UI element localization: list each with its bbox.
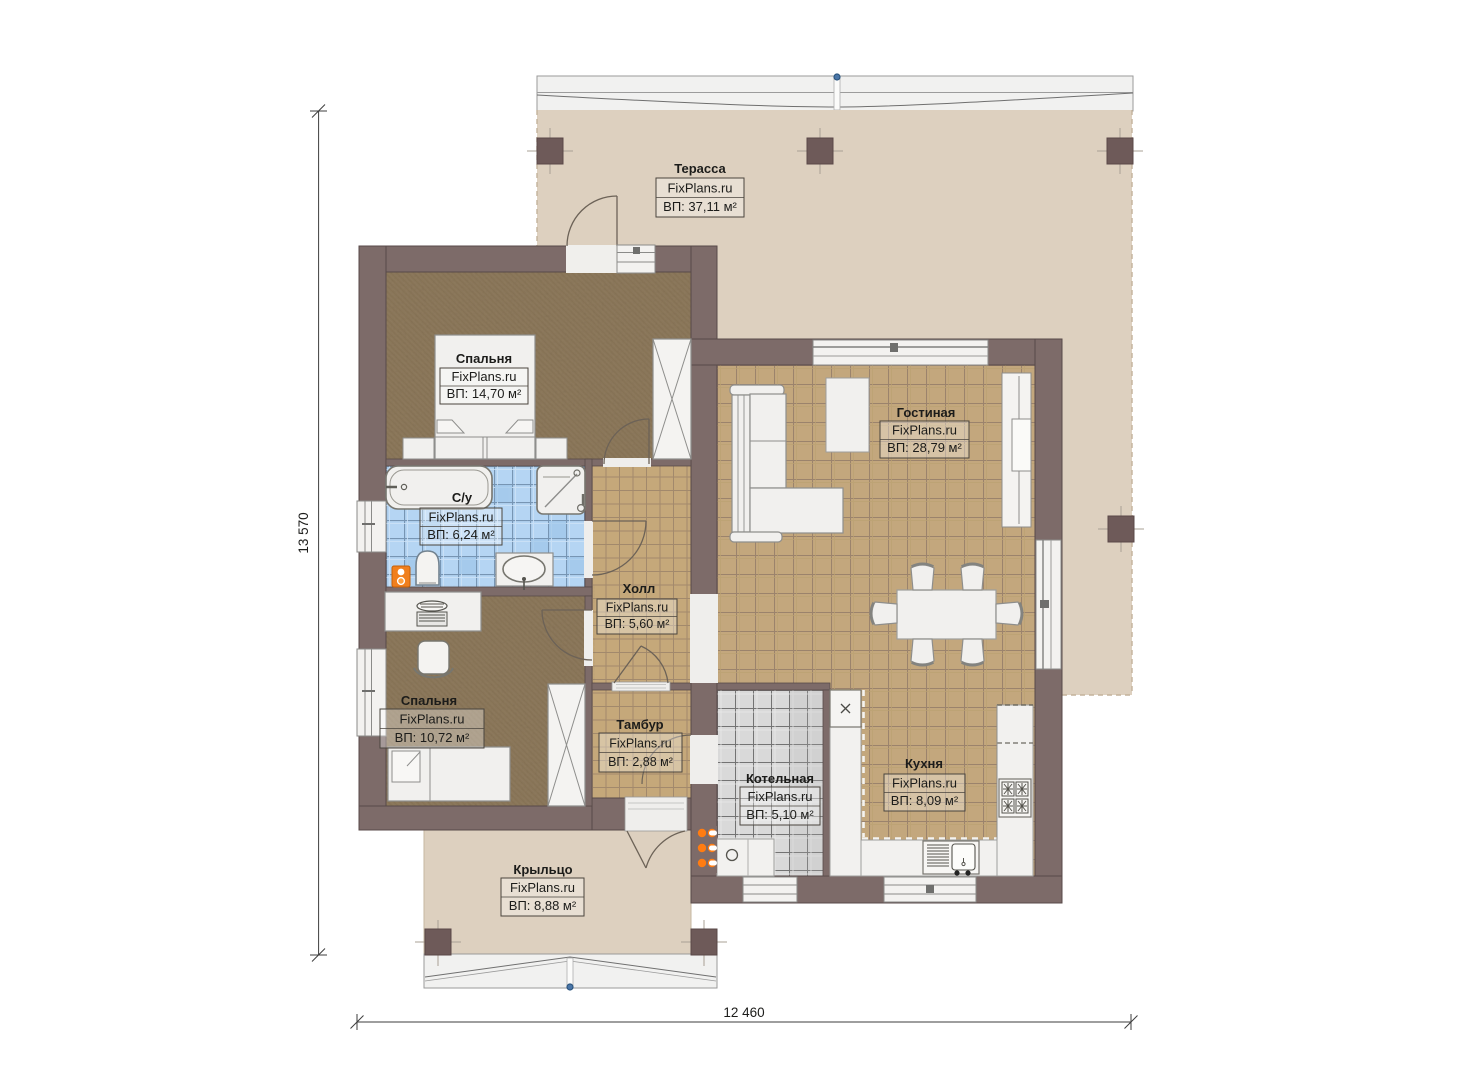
svg-text:FixPlans.ru: FixPlans.ru [609,737,672,751]
svg-text:FixPlans.ru: FixPlans.ru [399,712,464,727]
svg-text:ВП: 8,09 м²: ВП: 8,09 м² [891,793,959,808]
svg-text:Спальня: Спальня [401,693,457,708]
svg-text:Тамбур: Тамбур [616,717,663,732]
svg-text:Терасса: Терасса [674,161,726,176]
svg-text:Гостиная: Гостиная [897,405,956,420]
svg-text:ВП: 10,72 м²: ВП: 10,72 м² [395,730,470,745]
svg-text:Котельная: Котельная [746,771,814,786]
svg-text:ВП: 14,70 м²: ВП: 14,70 м² [447,386,522,401]
svg-text:FixPlans.ru: FixPlans.ru [428,510,493,525]
svg-text:FixPlans.ru: FixPlans.ru [606,601,669,615]
svg-text:FixPlans.ru: FixPlans.ru [892,776,957,791]
svg-text:13 570: 13 570 [296,512,311,553]
svg-text:Спальня: Спальня [456,351,512,366]
svg-text:Кухня: Кухня [905,756,943,771]
svg-text:FixPlans.ru: FixPlans.ru [667,181,732,196]
svg-text:FixPlans.ru: FixPlans.ru [747,789,812,804]
svg-text:ВП: 28,79 м²: ВП: 28,79 м² [887,440,962,455]
svg-text:ВП: 6,24 м²: ВП: 6,24 м² [427,527,495,542]
svg-text:ВП: 5,60 м²: ВП: 5,60 м² [605,617,670,631]
svg-text:FixPlans.ru: FixPlans.ru [451,369,516,384]
svg-text:ВП: 8,88 м²: ВП: 8,88 м² [509,898,577,913]
svg-text:12 460: 12 460 [723,1005,764,1020]
svg-text:С/у: С/у [452,490,473,505]
svg-text:ВП: 37,11 м²: ВП: 37,11 м² [663,199,737,214]
svg-text:ВП: 5,10 м²: ВП: 5,10 м² [746,807,814,822]
svg-text:FixPlans.ru: FixPlans.ru [892,423,957,438]
svg-text:ВП: 2,88 м²: ВП: 2,88 м² [608,755,673,769]
svg-text:FixPlans.ru: FixPlans.ru [510,880,575,895]
svg-text:Холл: Холл [623,581,656,596]
svg-text:Крыльцо: Крыльцо [513,862,572,877]
